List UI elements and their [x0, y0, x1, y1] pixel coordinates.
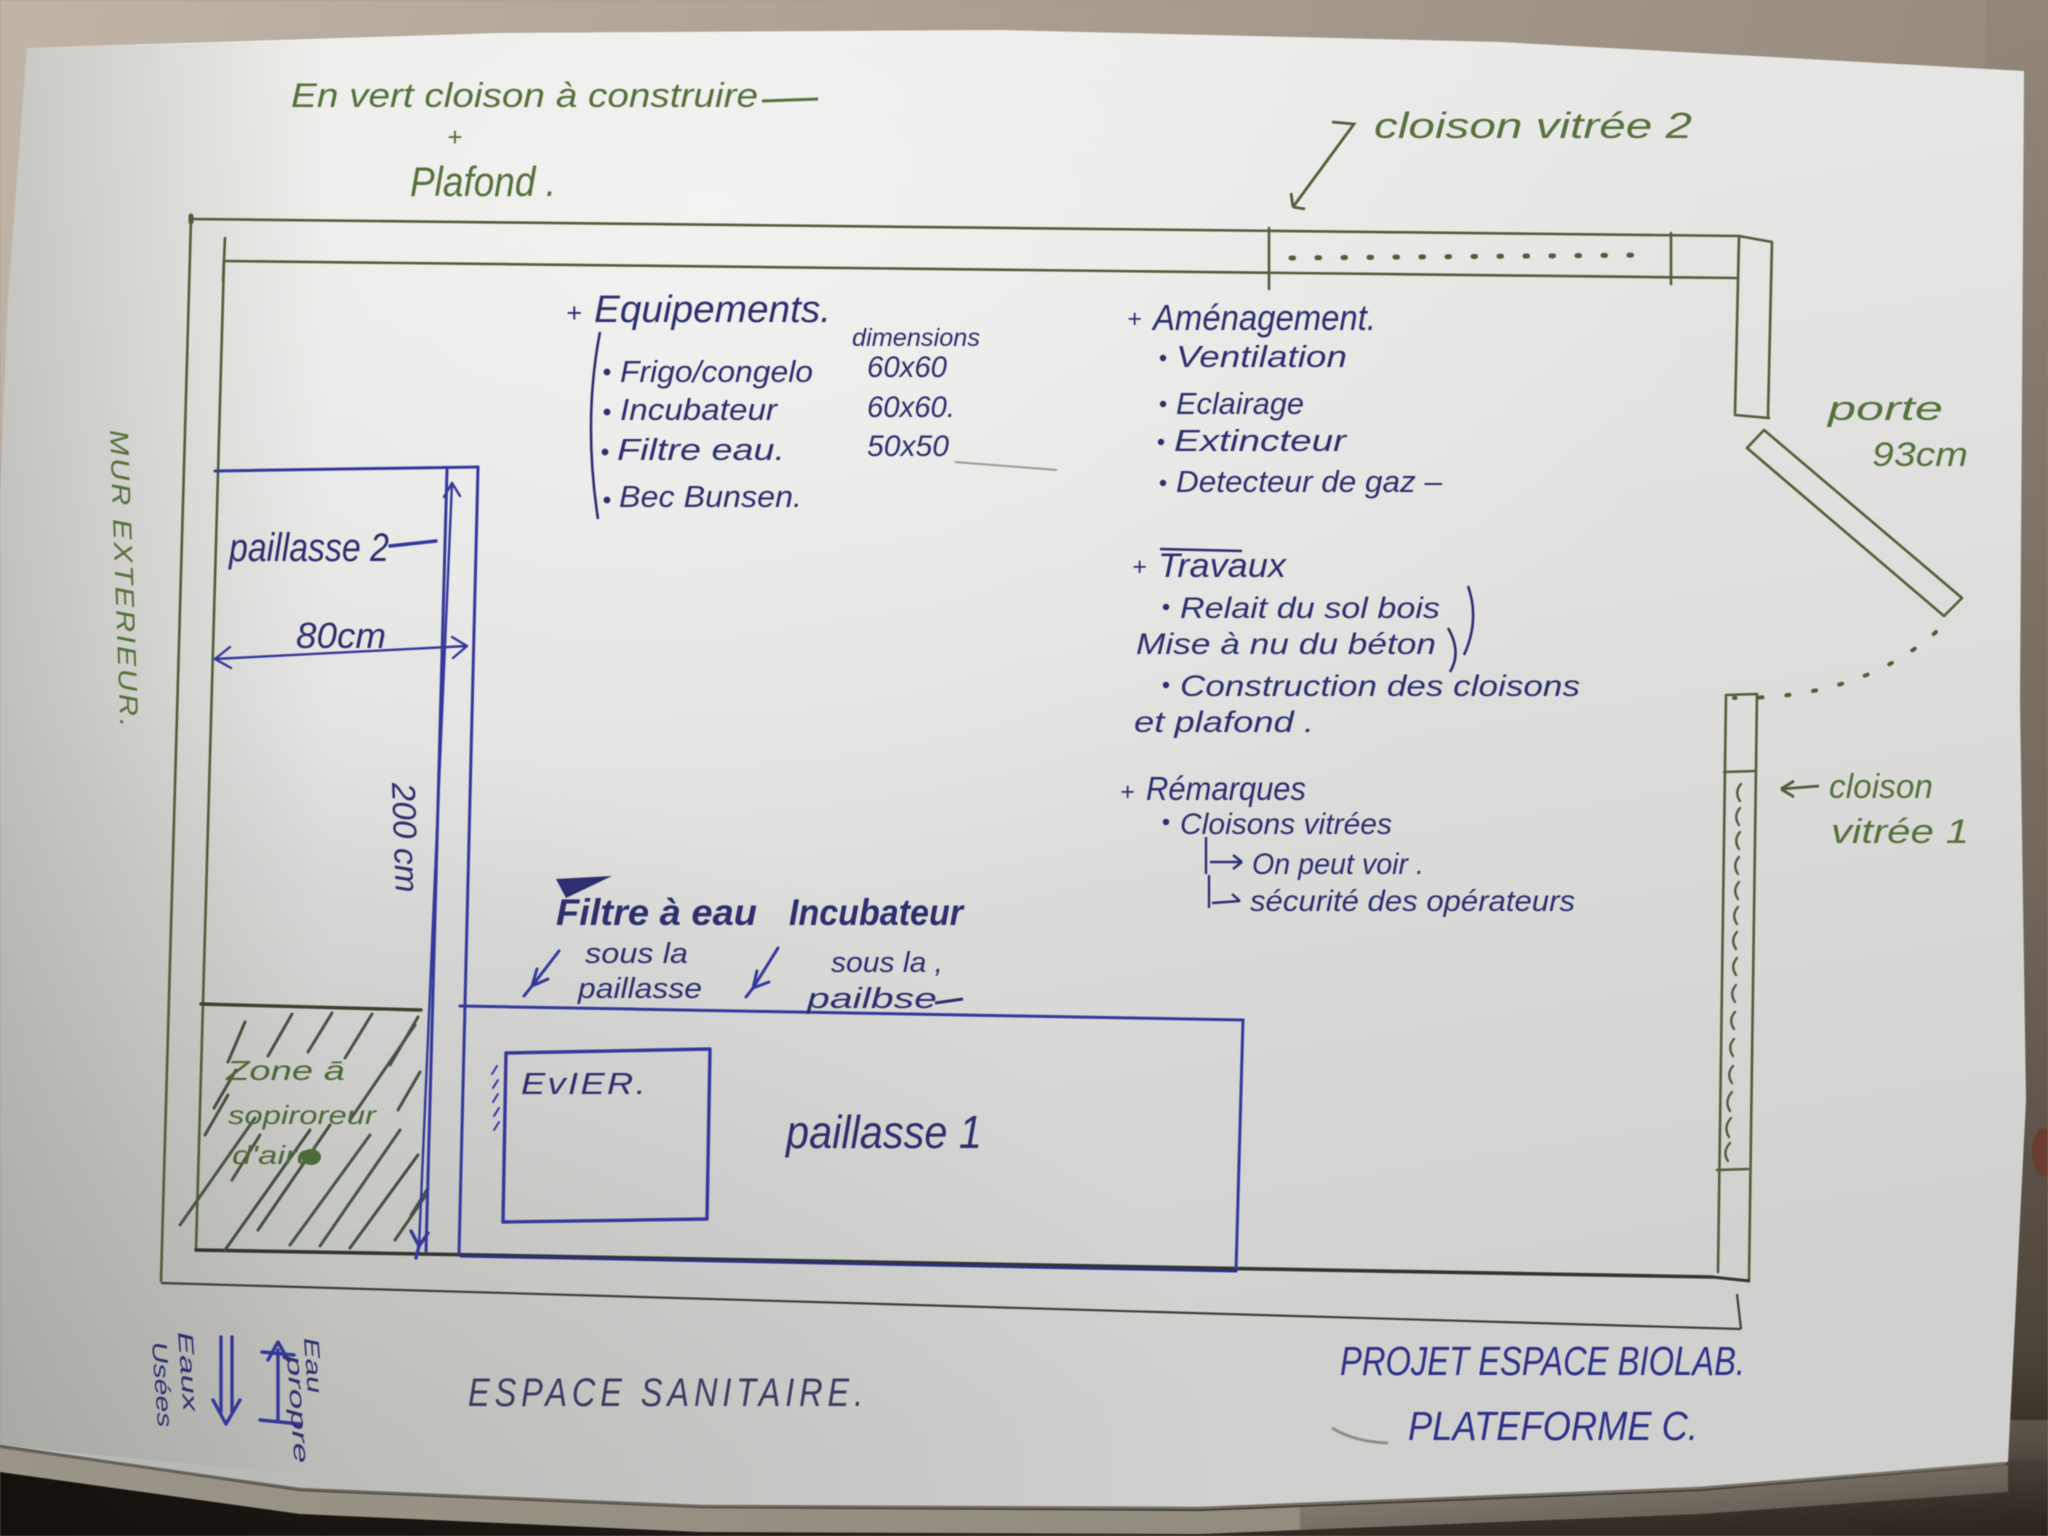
svg-text:sous la ,: sous la ,	[831, 947, 943, 979]
svg-text:Incubateur: Incubateur	[789, 892, 965, 933]
svg-text:Cloisons vitrées: Cloisons vitrées	[1180, 808, 1392, 841]
svg-text:sous la: sous la	[585, 938, 688, 970]
svg-text:+: +	[1132, 553, 1147, 581]
svg-text:cloison vitrée 2: cloison vitrée 2	[1374, 105, 1692, 146]
svg-text:sopiroreur: sopiroreur	[228, 1100, 378, 1130]
svg-text:PROJET ESPACE BIOLAB.: PROJET ESPACE BIOLAB.	[1340, 1338, 1745, 1384]
svg-text:EvIER.: EvIER.	[521, 1066, 648, 1101]
svg-text:Zone ā: Zone ā	[225, 1055, 345, 1086]
svg-text:Rémarques: Rémarques	[1146, 770, 1306, 807]
svg-text:cloison: cloison	[1829, 768, 1933, 806]
svg-text:vitrée 1: vitrée 1	[1831, 813, 1969, 851]
svg-text:sécurité des opérateurs: sécurité des opérateurs	[1250, 885, 1575, 918]
svg-text:paillasse: paillasse	[577, 973, 702, 1005]
svg-text:60x60.: 60x60.	[867, 391, 955, 424]
svg-text:Relait du sol bois: Relait du sol bois	[1180, 592, 1440, 625]
svg-text:Filtre à eau: Filtre à eau	[556, 892, 757, 933]
svg-text:Detecteur de gaz –: Detecteur de gaz –	[1176, 464, 1443, 499]
svg-text:Equipements.: Equipements.	[594, 289, 831, 331]
svg-text:dimensions: dimensions	[852, 324, 980, 352]
svg-text:Frigo/congelo: Frigo/congelo	[620, 354, 813, 389]
svg-text:ESPACE SANITAIRE.: ESPACE SANITAIRE.	[468, 1371, 868, 1415]
svg-text:et plafond .: et plafond .	[1134, 706, 1314, 739]
svg-text:+: +	[1120, 778, 1135, 806]
svg-text:porte: porte	[1827, 390, 1943, 428]
svg-text:pailbse: pailbse	[806, 983, 937, 1015]
svg-text:Construction des cloisons: Construction des cloisons	[1180, 670, 1580, 703]
svg-text:Mise à nu du béton: Mise à nu du béton	[1136, 628, 1436, 661]
svg-text:+: +	[447, 122, 462, 152]
svg-text:+: +	[566, 298, 582, 328]
svg-text:Plafond .: Plafond .	[410, 158, 556, 205]
svg-text:Ventilation: Ventilation	[1176, 339, 1347, 374]
svg-text:80cm: 80cm	[296, 615, 386, 656]
svg-text:+: +	[1127, 305, 1142, 333]
svg-text:PLATEFORME C.: PLATEFORME C.	[1408, 1403, 1698, 1449]
svg-text:Incubateur: Incubateur	[620, 392, 779, 427]
svg-text:paillasse 1: paillasse 1	[784, 1106, 982, 1158]
svg-text:Travaux: Travaux	[1158, 547, 1287, 585]
svg-text:Aménagement.: Aménagement.	[1151, 297, 1376, 338]
svg-text:Eclairage: Eclairage	[1176, 386, 1304, 421]
svg-text:paillasse 2: paillasse 2	[228, 526, 389, 570]
svg-text:Extincteur: Extincteur	[1174, 423, 1348, 458]
svg-text:En vert cloison à construire: En vert cloison à construire	[291, 77, 758, 115]
svg-text:93cm: 93cm	[1872, 436, 1968, 474]
svg-text:On peut voir .: On peut voir .	[1252, 848, 1424, 881]
svg-text:Bec Bunsen.: Bec Bunsen.	[619, 479, 802, 514]
svg-text:200 cm: 200 cm	[385, 781, 426, 893]
svg-text:50x50: 50x50	[867, 430, 949, 463]
svg-text:60x60: 60x60	[867, 351, 947, 384]
svg-text:Filtre eau.: Filtre eau.	[617, 432, 785, 467]
